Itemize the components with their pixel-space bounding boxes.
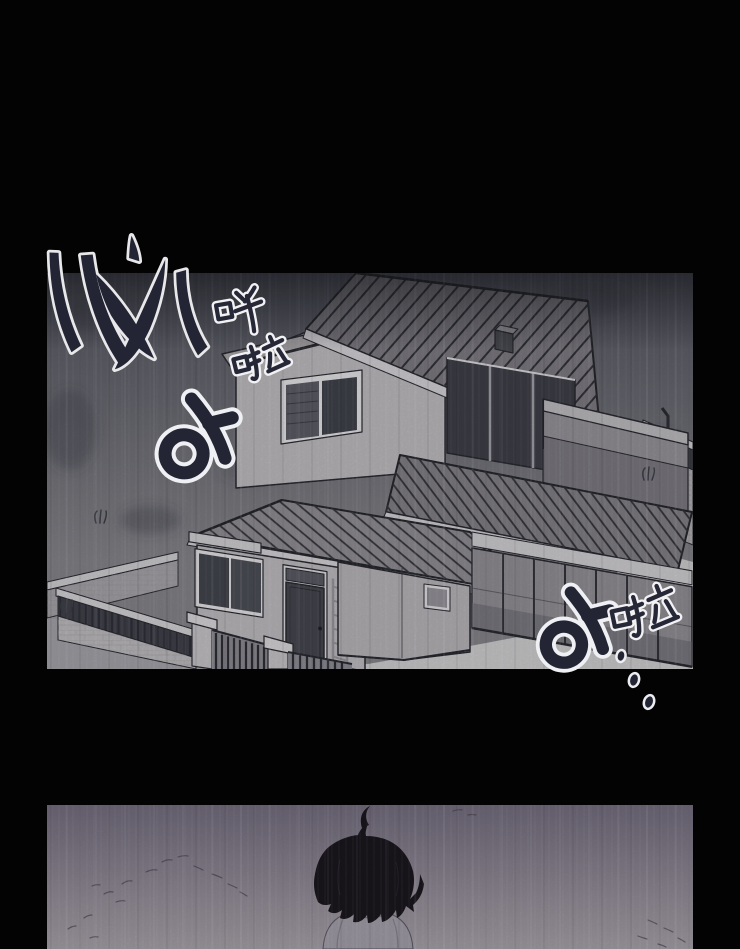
panel-boy-in-rain <box>47 805 693 949</box>
manga-page <box>0 0 740 949</box>
texture-grain-2 <box>47 805 693 949</box>
manga-page-art <box>0 0 740 949</box>
